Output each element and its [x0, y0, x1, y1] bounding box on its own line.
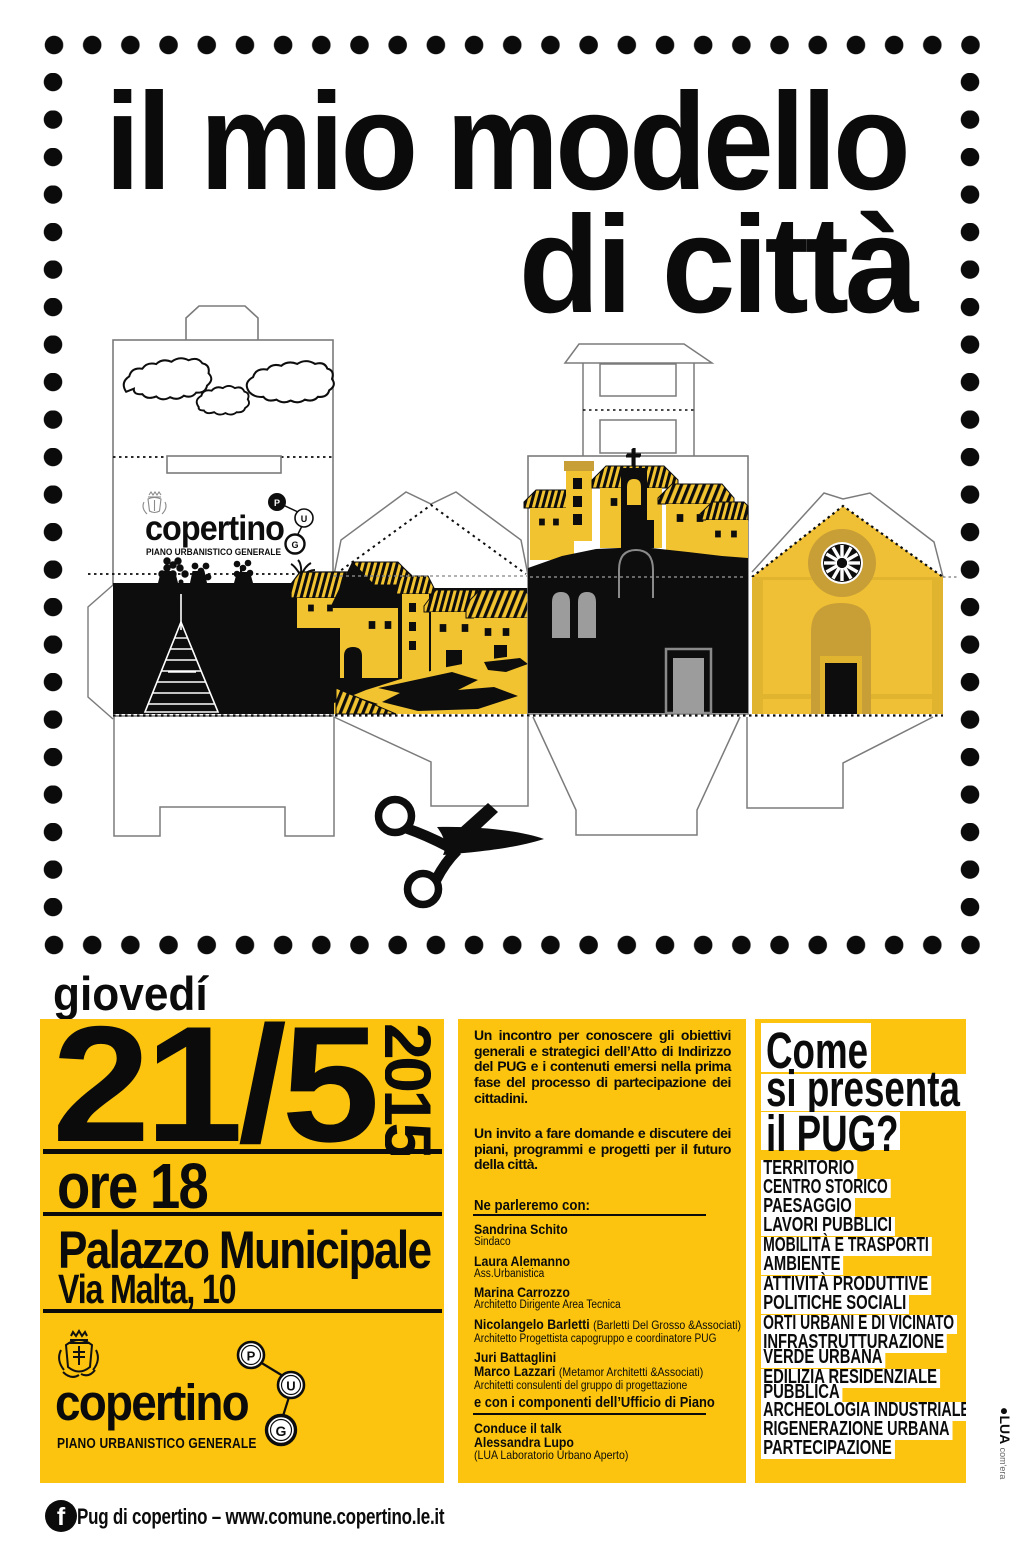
svg-text:P: P [274, 498, 280, 508]
svg-text:2015: 2015 [385, 1023, 431, 1155]
svg-text:U: U [301, 514, 308, 524]
svg-text:copertino: copertino [145, 509, 285, 548]
svg-text:PIANO URBANISTICO GENERALE: PIANO URBANISTICO GENERALE [146, 547, 281, 558]
svg-text:G: G [291, 540, 298, 550]
